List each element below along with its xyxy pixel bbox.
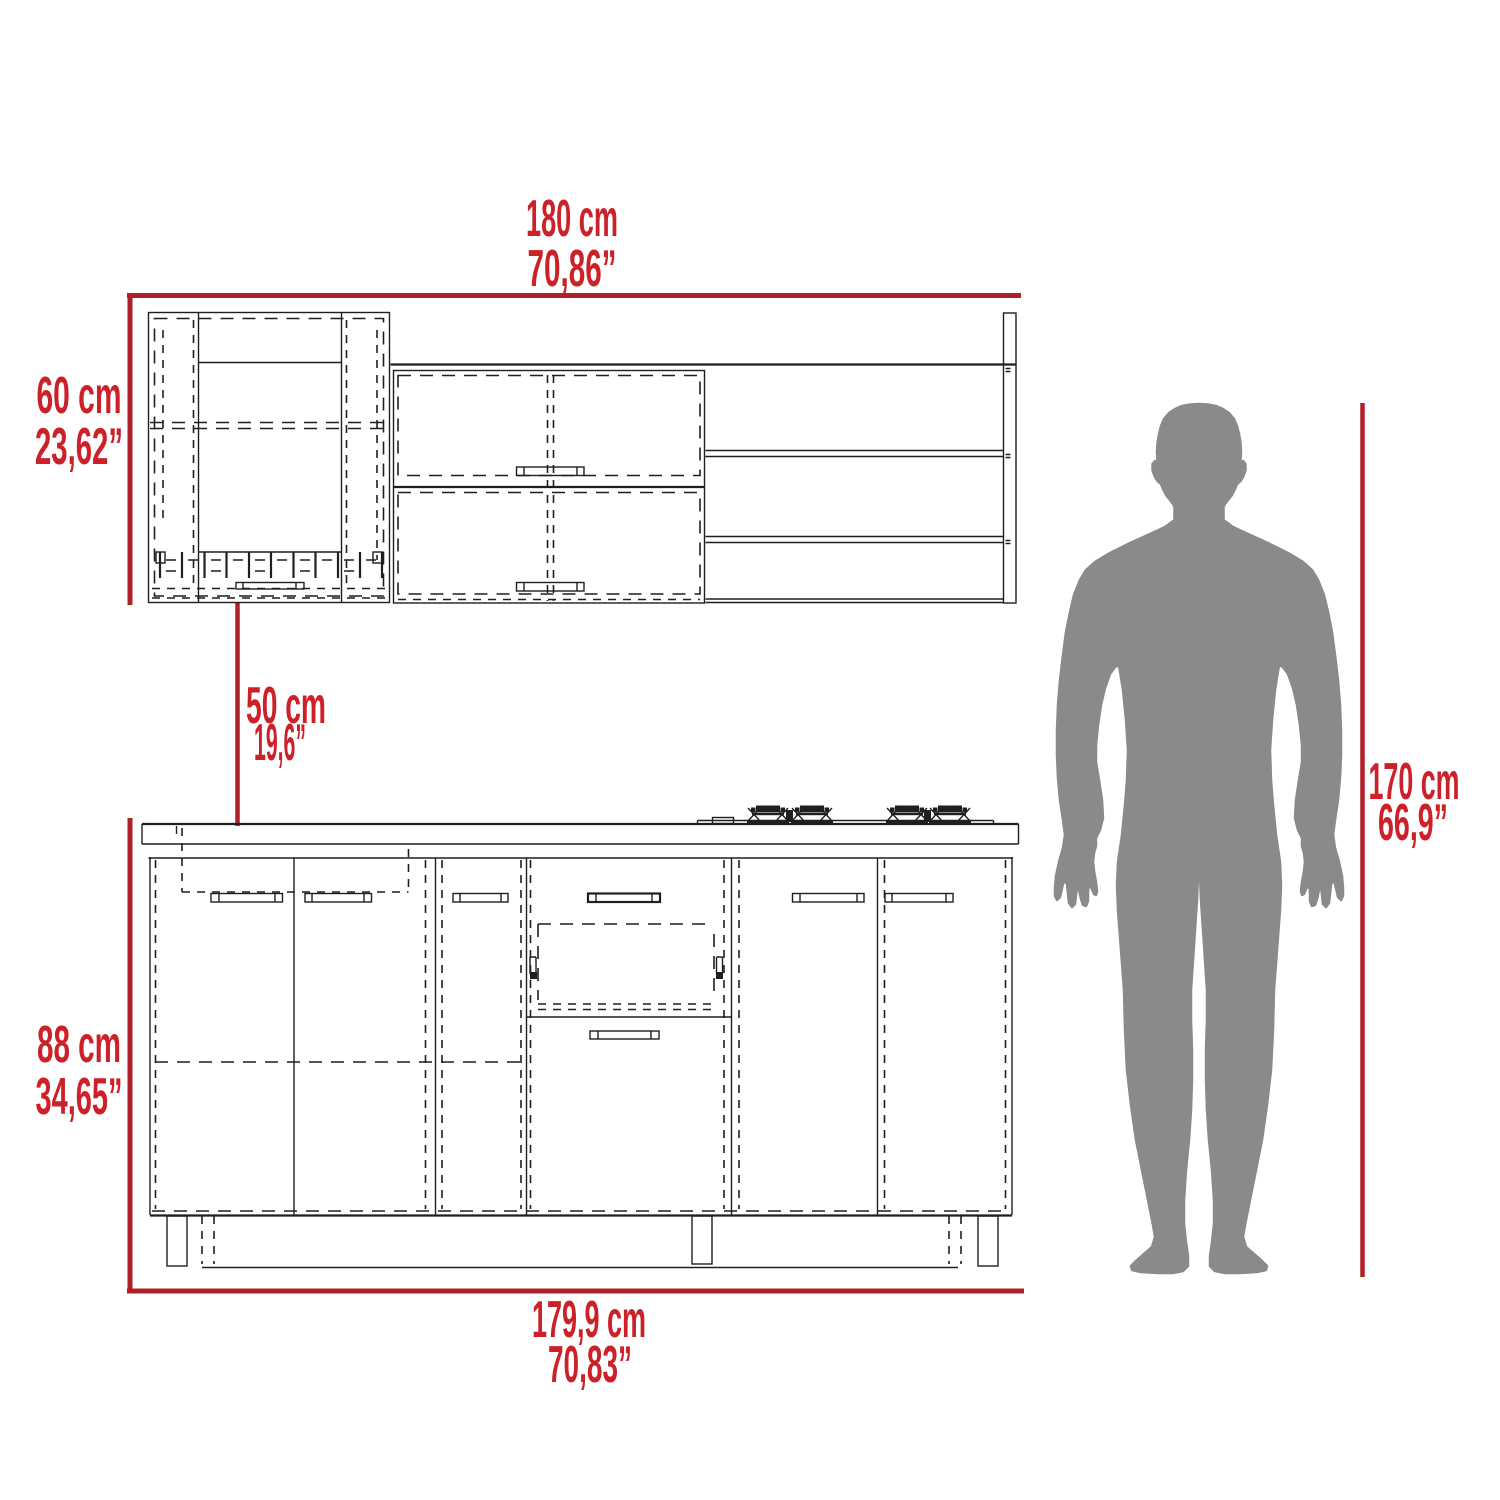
svg-text:19,6”: 19,6” — [254, 714, 306, 772]
svg-text:34,65”: 34,65” — [36, 1068, 123, 1126]
svg-text:70,86”: 70,86” — [528, 240, 617, 298]
svg-text:66,9”: 66,9” — [1378, 794, 1448, 852]
svg-text:60 cm: 60 cm — [37, 367, 122, 425]
svg-text:23,62”: 23,62” — [35, 418, 123, 476]
svg-text:88 cm: 88 cm — [37, 1016, 121, 1074]
svg-text:70,83”: 70,83” — [548, 1336, 632, 1394]
